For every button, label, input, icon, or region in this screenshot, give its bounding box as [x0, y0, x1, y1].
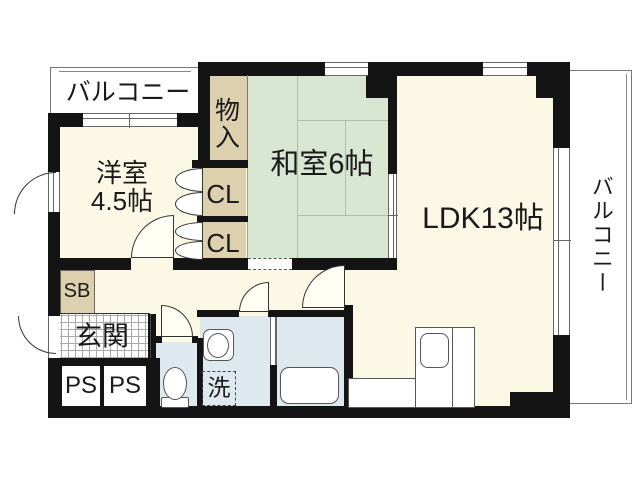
- wall: [173, 258, 248, 270]
- washbasin-icon: [207, 333, 229, 358]
- wall: [197, 216, 248, 222]
- storage-label: 物入: [212, 97, 239, 151]
- pipe-space-2-label: PS: [109, 373, 141, 399]
- window: [83, 113, 177, 127]
- pipe-space-1-label: PS: [65, 373, 97, 399]
- window-sliding-ldk: [553, 148, 570, 335]
- sliding-door-japanese-hall: [248, 258, 292, 270]
- balcony-right-label: バルコニー: [589, 175, 613, 295]
- bathtub-icon: [280, 367, 339, 404]
- sliding-door-storage: [247, 75, 249, 160]
- wall: [198, 62, 325, 76]
- floor-plan: バルコニー 物入 和室6帖 LDK13帖 洋室 4.5帖 CL CL SB 玄関…: [0, 0, 640, 480]
- wall: [268, 310, 353, 317]
- wall: [553, 335, 570, 418]
- western-room-label: 洋室 4.5帖: [91, 159, 153, 215]
- wall: [197, 310, 239, 317]
- closet-2-label: CL: [206, 229, 239, 257]
- door-tick: [389, 215, 398, 216]
- kitchen-counter-divider: [452, 327, 453, 408]
- wall: [192, 160, 248, 168]
- entrance-door-swing-arc: [18, 316, 56, 354]
- wall: [553, 70, 570, 148]
- wall: [388, 95, 397, 174]
- window-tick: [129, 114, 130, 128]
- tatami-line: [297, 215, 390, 216]
- entrance-label: 玄関: [75, 322, 129, 351]
- kitchen-counter: [348, 378, 416, 408]
- kitchen-sink-icon: [420, 333, 449, 368]
- balcony-top-label: バルコニー: [66, 80, 191, 107]
- window: [325, 62, 368, 76]
- laundry-label: 洗: [208, 376, 231, 401]
- shoe-box-label: SB: [64, 281, 91, 303]
- wall: [198, 62, 210, 168]
- window-tick: [554, 240, 571, 241]
- balcony-right-rail-line: [626, 74, 627, 400]
- wall-pillar: [366, 62, 397, 98]
- wall: [48, 258, 131, 270]
- tatami-line: [297, 120, 390, 121]
- wall: [270, 365, 277, 410]
- western-room-window-swing-arc: [14, 172, 56, 214]
- sliding-door-bathroom: [270, 317, 277, 365]
- wall: [48, 113, 83, 127]
- sliding-door-japanese-ldk: [388, 174, 397, 258]
- toilet-icon: [163, 367, 187, 400]
- window: [483, 62, 527, 76]
- balcony-top-rail-line: [59, 71, 191, 72]
- japanese-room-label: 和室6帖: [270, 149, 373, 180]
- wall: [48, 406, 570, 418]
- closet-1-label: CL: [206, 180, 239, 208]
- ldk-label: LDK13帖: [422, 203, 544, 235]
- entrance-step-line: [150, 314, 151, 358]
